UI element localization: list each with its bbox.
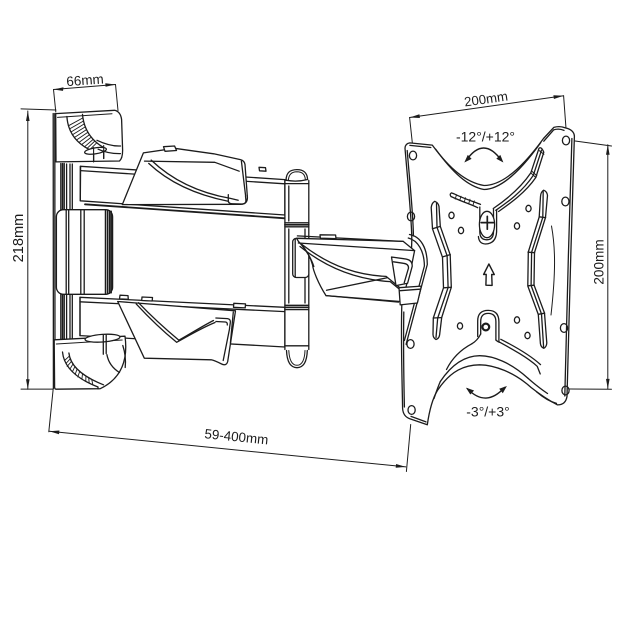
svg-text:-12°/+12°: -12°/+12° xyxy=(456,129,515,145)
svg-text:-3°/+3°: -3°/+3° xyxy=(466,404,510,420)
svg-text:200mm: 200mm xyxy=(592,239,607,284)
svg-text:66mm: 66mm xyxy=(66,72,104,90)
svg-text:218mm: 218mm xyxy=(11,214,27,263)
